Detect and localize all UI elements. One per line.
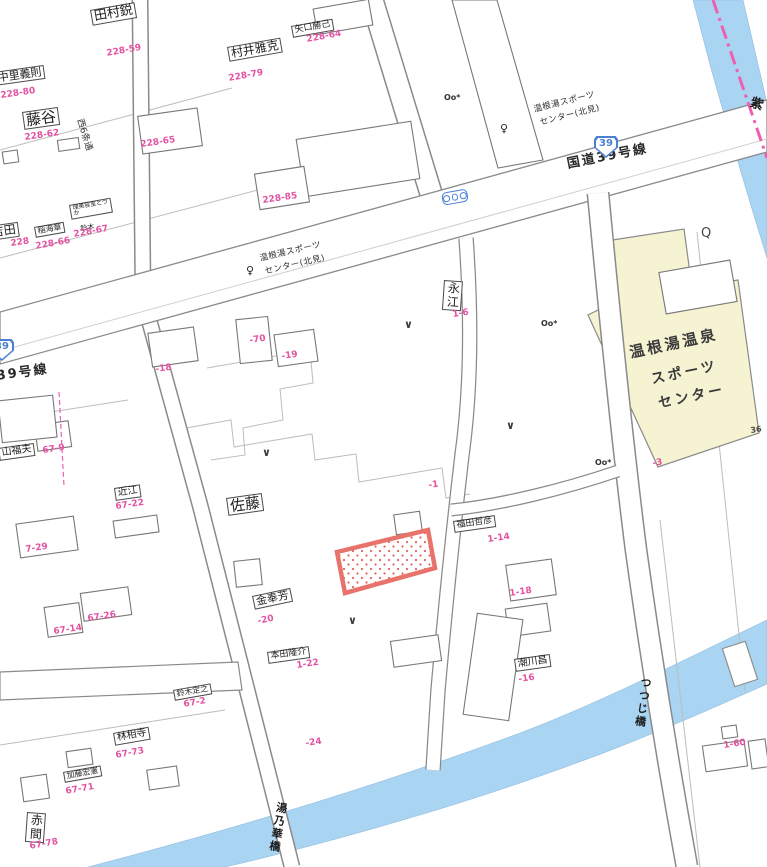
bus-stop-icon: ♀ [500,122,508,135]
lane-branch [451,471,618,510]
parcel-number-label: -1 [428,481,439,492]
entrance-icon: ∨ [506,419,515,432]
utility-pole-icon: Oo* [541,319,557,328]
name-box-label: 永江 [442,280,463,311]
utility-pole-icon: Oo* [444,93,460,102]
highlighted-parcel[interactable] [337,530,435,593]
well-icon: Q [701,226,711,241]
bus-stop-icon: ♀ [246,264,254,277]
entrance-icon: ∨ [262,446,271,459]
entrance-icon: ∨ [348,614,357,627]
entrance-icon: ∨ [404,318,413,331]
parcel-number-label: -3 [652,459,663,470]
lot-number-label: 36 [750,425,762,435]
map-canvas[interactable]: 田村鋭228-59中里義則228-80藤谷228-62村井雅克228-79矢口勝… [0,0,767,867]
utility-pole-icon: Oo* [595,458,611,467]
